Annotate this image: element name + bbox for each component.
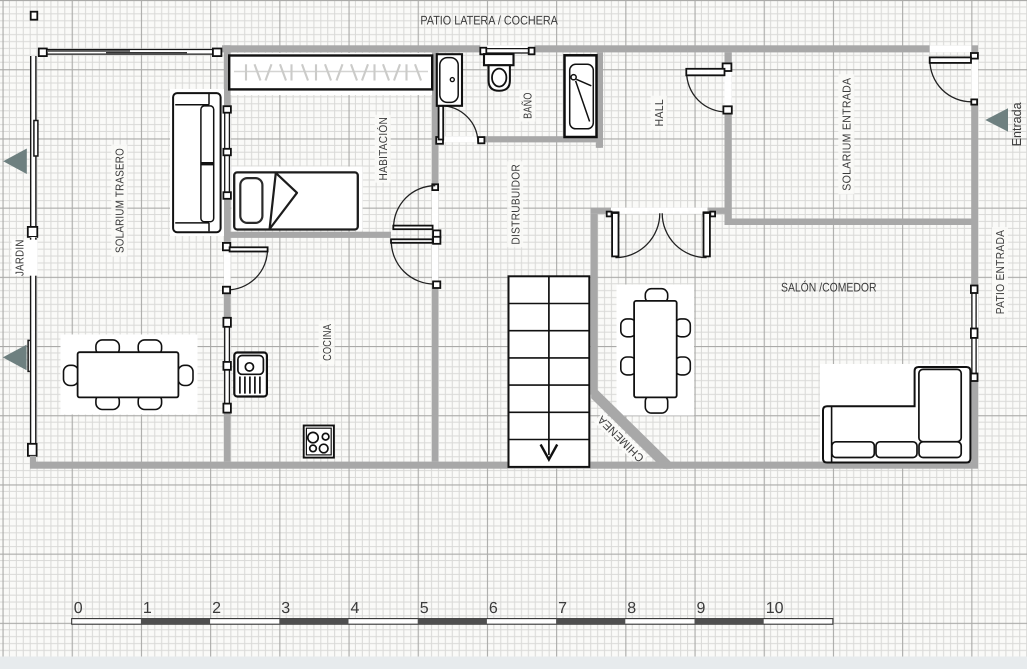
svg-text:3: 3 [281, 600, 290, 617]
svg-text:JARDIN: JARDIN [15, 239, 27, 276]
svg-text:SALÓN /COMEDOR: SALÓN /COMEDOR [781, 281, 877, 295]
svg-text:Entrada: Entrada [1009, 102, 1024, 147]
svg-text:2: 2 [212, 600, 221, 617]
svg-text:1: 1 [143, 600, 152, 617]
svg-text:BAÑO: BAÑO [521, 92, 535, 119]
svg-text:PATIO LATERA / COCHERA: PATIO LATERA / COCHERA [420, 13, 558, 27]
svg-text:SOLARIUM TRASERO: SOLARIUM TRASERO [115, 148, 127, 253]
svg-text:DISTRUBUIDOR: DISTRUBUIDOR [510, 164, 522, 245]
svg-text:7: 7 [558, 600, 567, 617]
svg-text:SOLARIUM ENTRADA: SOLARIUM ENTRADA [842, 78, 854, 191]
svg-text:COCINA: COCINA [322, 324, 334, 361]
svg-text:6: 6 [489, 600, 498, 617]
svg-text:4: 4 [351, 600, 360, 617]
svg-text:5: 5 [420, 600, 429, 617]
svg-text:9: 9 [697, 600, 706, 617]
svg-text:8: 8 [627, 600, 636, 617]
svg-text:10: 10 [766, 600, 784, 617]
svg-text:0: 0 [74, 600, 83, 617]
svg-text:HABITACIÓN: HABITACIÓN [377, 117, 390, 181]
svg-text:PATIO ENTRADA: PATIO ENTRADA [995, 230, 1007, 314]
svg-text:HALL: HALL [654, 99, 666, 127]
